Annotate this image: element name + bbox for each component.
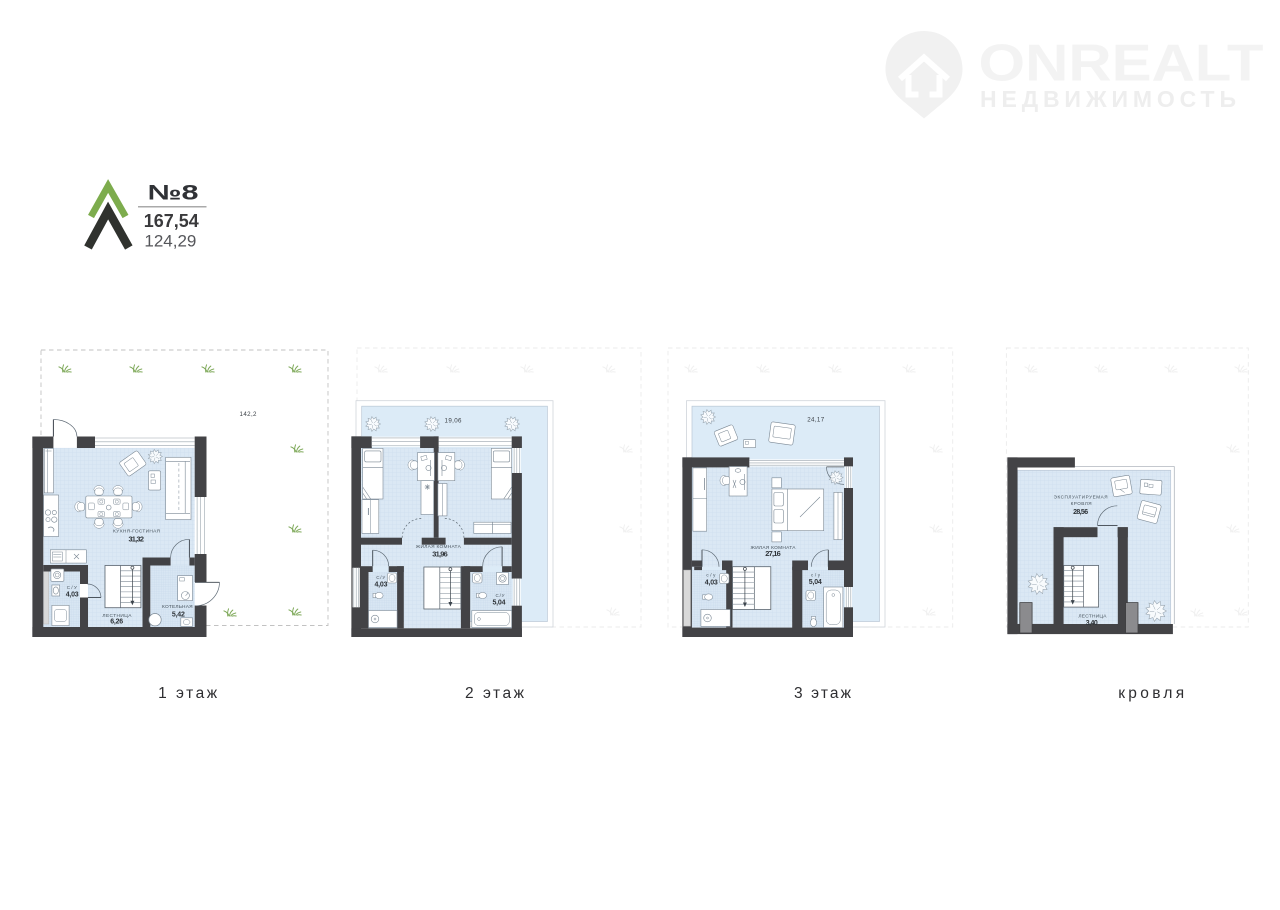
svg-text:167,54: 167,54 xyxy=(144,210,200,231)
svg-text:142,2: 142,2 xyxy=(240,411,258,418)
svg-text:ЭКСПЛУАТИРУЕМАЯ: ЭКСПЛУАТИРУЕМАЯ xyxy=(1054,495,1108,500)
svg-text:124,29: 124,29 xyxy=(144,232,196,251)
svg-text:С/У: С/У xyxy=(67,585,77,590)
svg-text:с/у: с/у xyxy=(706,573,716,578)
svg-text:19,06: 19,06 xyxy=(445,418,463,425)
svg-text:27,16: 27,16 xyxy=(765,549,781,558)
svg-text:с/у: с/у xyxy=(811,573,821,578)
svg-text:4,03: 4,03 xyxy=(375,582,388,589)
svg-text:5,04: 5,04 xyxy=(809,579,822,586)
svg-text:28,56: 28,56 xyxy=(1073,509,1088,516)
svg-text:С/У: С/У xyxy=(376,575,385,580)
svg-text:С/У: С/У xyxy=(496,593,505,598)
svg-text:3,40: 3,40 xyxy=(1086,620,1098,627)
svg-text:4,03: 4,03 xyxy=(705,580,718,587)
svg-text:№8: №8 xyxy=(148,182,199,205)
svg-text:ONREALT: ONREALT xyxy=(979,35,1264,93)
svg-text:КРОВЛЯ: КРОВЛЯ xyxy=(1071,501,1092,506)
svg-text:6,26: 6,26 xyxy=(110,618,123,625)
svg-text:ЛЕСТНИЦА: ЛЕСТНИЦА xyxy=(1078,613,1107,619)
svg-text:24,17: 24,17 xyxy=(807,417,825,424)
svg-text:4,03: 4,03 xyxy=(66,591,79,598)
svg-text:5,42: 5,42 xyxy=(172,612,185,619)
svg-text:31,32: 31,32 xyxy=(128,534,144,543)
svg-text:31,96: 31,96 xyxy=(432,549,448,558)
svg-text:5,04: 5,04 xyxy=(493,600,506,607)
svg-text:КОТЕЛЬНАЯ: КОТЕЛЬНАЯ xyxy=(162,604,193,610)
